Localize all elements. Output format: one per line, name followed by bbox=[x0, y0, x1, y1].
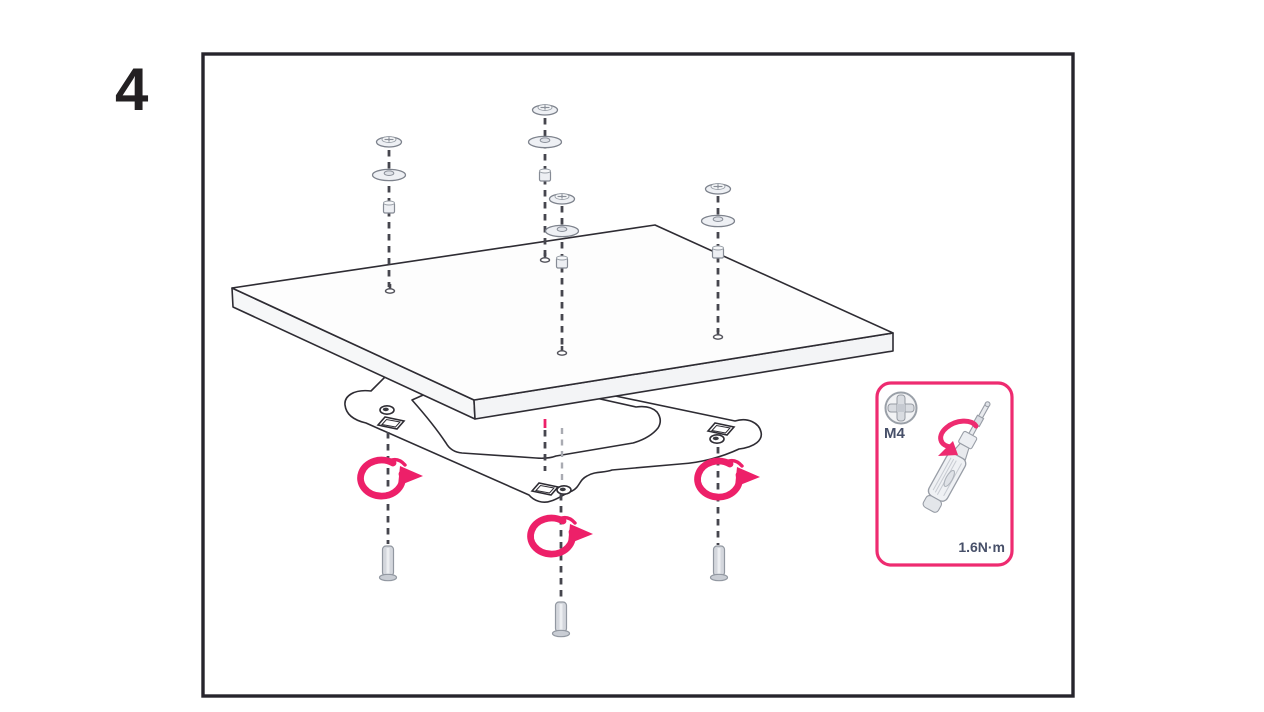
screw-size-label: M4 bbox=[884, 425, 905, 442]
washer-icon bbox=[546, 225, 579, 236]
bracket-hole-left bbox=[380, 406, 394, 414]
phillips-screw-head-icon bbox=[886, 393, 917, 424]
washer-icon bbox=[529, 136, 562, 147]
step-number: 4 bbox=[115, 56, 149, 123]
spacer-icon bbox=[713, 246, 724, 258]
assembly-figure: 4 bbox=[0, 0, 1264, 712]
spacer-icon bbox=[557, 256, 568, 268]
bottom-screw-1 bbox=[380, 546, 397, 581]
screw-head-icon bbox=[706, 184, 731, 195]
torque-inset: M4 1.6N·m bbox=[877, 383, 1012, 565]
washer-icon bbox=[702, 215, 735, 226]
bottom-screw-3 bbox=[711, 546, 728, 581]
bracket-hole-front bbox=[557, 486, 571, 494]
screw-head-icon bbox=[377, 137, 402, 148]
bottom-screw-2 bbox=[553, 602, 570, 637]
screw-head-icon bbox=[550, 194, 575, 205]
washer-icon bbox=[373, 169, 406, 180]
torque-value-label: 1.6N·m bbox=[958, 539, 1005, 555]
spacer-icon bbox=[540, 169, 551, 181]
spacer-icon bbox=[384, 201, 395, 213]
screw-head-icon bbox=[533, 105, 558, 116]
bracket-hole-right bbox=[710, 435, 724, 443]
manual-page: 4 bbox=[0, 0, 1264, 712]
